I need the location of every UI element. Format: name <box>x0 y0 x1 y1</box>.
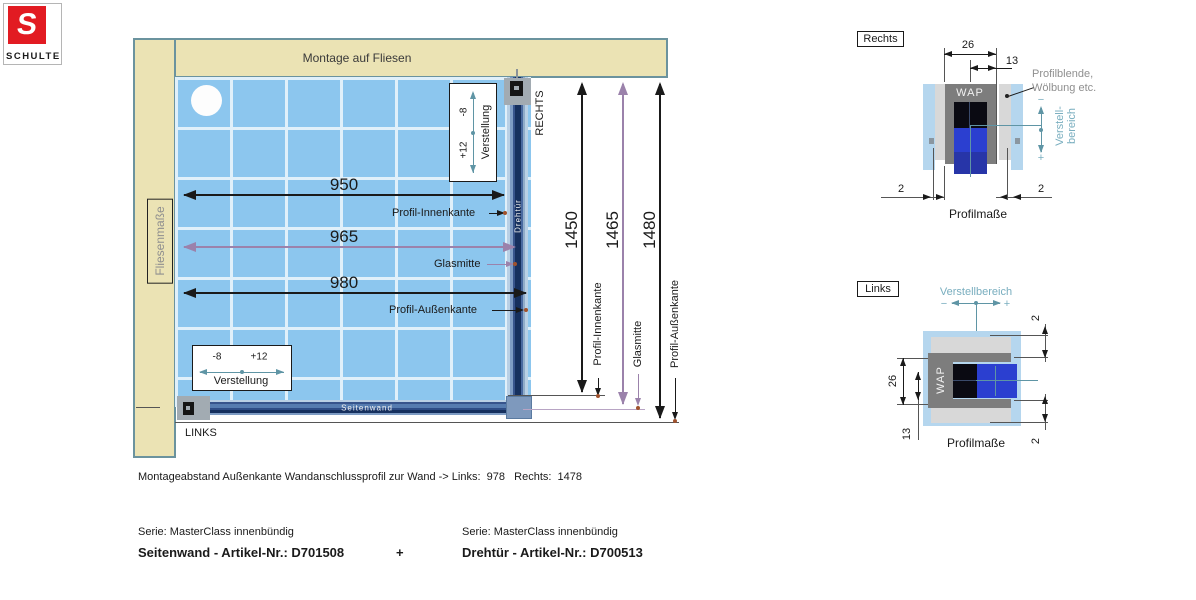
leader-line <box>487 264 507 265</box>
arrowhead <box>514 288 527 298</box>
logo-letter: S <box>15 8 39 42</box>
dim-line-1480 <box>659 84 661 418</box>
vdim-label-profil-aussenkante: Profil-Außenkante <box>669 280 681 368</box>
door-bracket-pin <box>516 69 518 78</box>
arrowhead <box>1042 396 1048 404</box>
note-profilblende-line1: Profilblende, <box>1032 68 1093 80</box>
gap-dim-bottom: 2 <box>1030 438 1042 444</box>
wap-label: WAP <box>956 87 984 99</box>
corner-connector <box>506 396 532 419</box>
reference-dot <box>673 419 677 423</box>
dim-value-950: 950 <box>330 175 358 195</box>
arrowhead <box>618 82 628 95</box>
vdim-label-profil-innenkante: Profil-Innenkante <box>592 282 604 365</box>
article-left: Seitenwand - Artikel-Nr.: D701508 <box>138 545 344 560</box>
arrowhead <box>970 65 978 71</box>
dim-label-glasmitte: Glasmitte <box>434 258 480 270</box>
center-crosshair-v2 <box>995 366 996 396</box>
range-label-line1: Verstell- <box>1054 106 1066 146</box>
extension-line <box>996 48 997 164</box>
range-plus: + <box>1004 298 1010 310</box>
detail-links-caption: Profilmaße <box>947 436 1005 450</box>
side-label-rechts: RECHTS <box>534 90 546 135</box>
outer-edge-line <box>175 422 679 423</box>
gap-dim-right: 2 <box>1038 183 1044 195</box>
main-diagram-title: Montage auf Fliesen <box>303 51 412 65</box>
inner-edge-line <box>508 395 605 396</box>
glass-center-line <box>523 409 645 410</box>
arrowhead <box>988 65 996 71</box>
arrowhead <box>655 406 665 419</box>
range-label: Verstellbereich <box>940 286 1012 298</box>
gap-dim-line <box>881 197 944 198</box>
gap-dim-top: 2 <box>1030 315 1042 321</box>
arrowhead <box>470 91 476 99</box>
cover-strip-left <box>935 84 945 160</box>
adjust-center-dot <box>240 370 244 374</box>
dim-label-profil-aussenkante: Profil-Außenkante <box>389 304 477 316</box>
dim-value-1465: 1465 <box>603 211 623 249</box>
adjuster-screw-left <box>929 138 934 144</box>
arrowhead <box>1042 414 1048 422</box>
extension-line <box>944 166 945 200</box>
gap-dim-left: 2 <box>898 183 904 195</box>
cover-strip-top <box>931 337 1011 353</box>
arrowhead <box>993 300 1001 306</box>
adjust-center-dot <box>471 131 475 135</box>
dim-label-profil-innenkante: Profil-Innenkante <box>392 207 475 219</box>
arrowhead <box>183 190 196 200</box>
leader-line <box>492 310 517 311</box>
arrowhead <box>577 380 587 393</box>
adjust-minus-value: -8 <box>213 352 222 363</box>
dim-value-1480: 1480 <box>640 211 660 249</box>
extension-line <box>970 60 971 82</box>
adjuster-screw-right <box>1015 138 1020 144</box>
side-label-links: LINKS <box>185 427 217 439</box>
reference-dot <box>513 262 517 266</box>
reference-dot <box>1005 94 1009 98</box>
range-minus: − <box>1038 94 1044 106</box>
wall-tick-line <box>136 407 160 408</box>
arrowhead <box>635 398 641 406</box>
note-profilblende-line2: Wölbung etc. <box>1032 82 1096 94</box>
detail-links-title: Links <box>857 281 899 297</box>
arrowhead <box>492 190 505 200</box>
arrowhead <box>276 369 284 375</box>
glass-edge-dark <box>953 364 977 398</box>
door-clamp-notch <box>514 86 519 90</box>
dim-value-1450: 1450 <box>562 211 582 249</box>
adjust-minus-value: -8 <box>459 108 470 117</box>
center-crosshair-h <box>976 380 1038 381</box>
arrowhead <box>183 288 196 298</box>
arrowhead <box>900 397 906 405</box>
shower-head-circle <box>191 85 222 116</box>
tile-dimensions-label: Fliesenmaße <box>147 198 173 283</box>
arrowhead <box>1042 326 1048 334</box>
arrowhead <box>183 242 196 252</box>
arrowhead <box>470 165 476 173</box>
center-crosshair-v <box>970 125 971 177</box>
cover-strip-bottom <box>931 407 1011 423</box>
reference-dot <box>524 308 528 312</box>
arrowhead <box>915 372 921 380</box>
arrowhead <box>900 358 906 366</box>
glass-divider <box>953 380 977 381</box>
wap-label: WAP <box>935 366 947 394</box>
detail-rechts-caption: Profilmaße <box>949 207 1007 221</box>
extension-line <box>990 335 1048 336</box>
wap-profile-right-wall <box>987 84 996 164</box>
dim-value-965: 965 <box>330 227 358 247</box>
arrowhead <box>516 307 524 313</box>
reference-dot <box>503 211 507 215</box>
door-profile-label: Drehtür <box>514 199 523 233</box>
dim-value-13: 13 <box>901 428 913 440</box>
arrowhead <box>951 300 959 306</box>
glass-panel-right <box>1011 84 1023 170</box>
arrowhead <box>936 194 944 200</box>
adjust-plus-value: +12 <box>459 142 470 159</box>
vdim-label-glasmitte: Glasmitte <box>632 321 644 367</box>
arrowhead <box>944 51 952 57</box>
adjust-plus-value: +12 <box>251 352 268 363</box>
arrowhead <box>577 82 587 95</box>
arrowhead <box>1013 194 1021 200</box>
dim-value-980: 980 <box>330 273 358 293</box>
mounting-note: Montageabstand Außenkante Wandanschlussp… <box>138 471 582 483</box>
arrowhead <box>199 369 207 375</box>
leader-line <box>638 374 639 398</box>
detail-rechts-title: Rechts <box>857 31 904 47</box>
reference-dot <box>596 394 600 398</box>
drawing-canvas: S SCHULTE Montage auf Fliesen Fliesenmaß… <box>0 0 1196 600</box>
series-left: Serie: MasterClass innenbündig <box>138 526 294 538</box>
arrowhead <box>503 242 516 252</box>
arrowhead <box>618 392 628 405</box>
dim-value-13: 13 <box>1006 55 1018 67</box>
dim-value-26: 26 <box>962 39 974 51</box>
panel-clamp-notch <box>186 406 190 410</box>
range-plus: + <box>1038 152 1044 164</box>
arrowhead <box>988 51 996 57</box>
logo-brand-text: SCHULTE <box>6 51 58 62</box>
series-right: Serie: MasterClass innenbündig <box>462 526 618 538</box>
adjust-label: Verstellung <box>214 375 268 387</box>
reference-dot <box>636 406 640 410</box>
arrowhead <box>915 392 921 400</box>
plus-separator: + <box>396 545 404 560</box>
extension-line <box>1007 148 1008 200</box>
range-label-line2: bereich <box>1066 108 1078 144</box>
adjust-label: Verstellung <box>480 105 492 159</box>
arrowhead <box>923 194 931 200</box>
side-panel-label: Seitenwand <box>341 404 393 413</box>
glass-edge-blue <box>977 364 1017 398</box>
extension-line <box>990 422 1048 423</box>
schulte-logo-icon: S <box>8 6 46 44</box>
arrowhead <box>655 82 665 95</box>
leader-line <box>675 378 676 412</box>
dim-value-26: 26 <box>887 375 899 387</box>
extension-line <box>933 148 934 200</box>
range-center-dot <box>1039 128 1043 132</box>
range-minus: − <box>941 298 947 310</box>
arrowhead <box>1042 350 1048 358</box>
center-crosshair-h <box>970 125 1042 126</box>
arrowhead <box>1038 106 1044 114</box>
extension-line <box>918 400 919 440</box>
article-right: Drehtür - Artikel-Nr.: D700513 <box>462 545 643 560</box>
wap-profile-left-wall <box>945 84 954 164</box>
